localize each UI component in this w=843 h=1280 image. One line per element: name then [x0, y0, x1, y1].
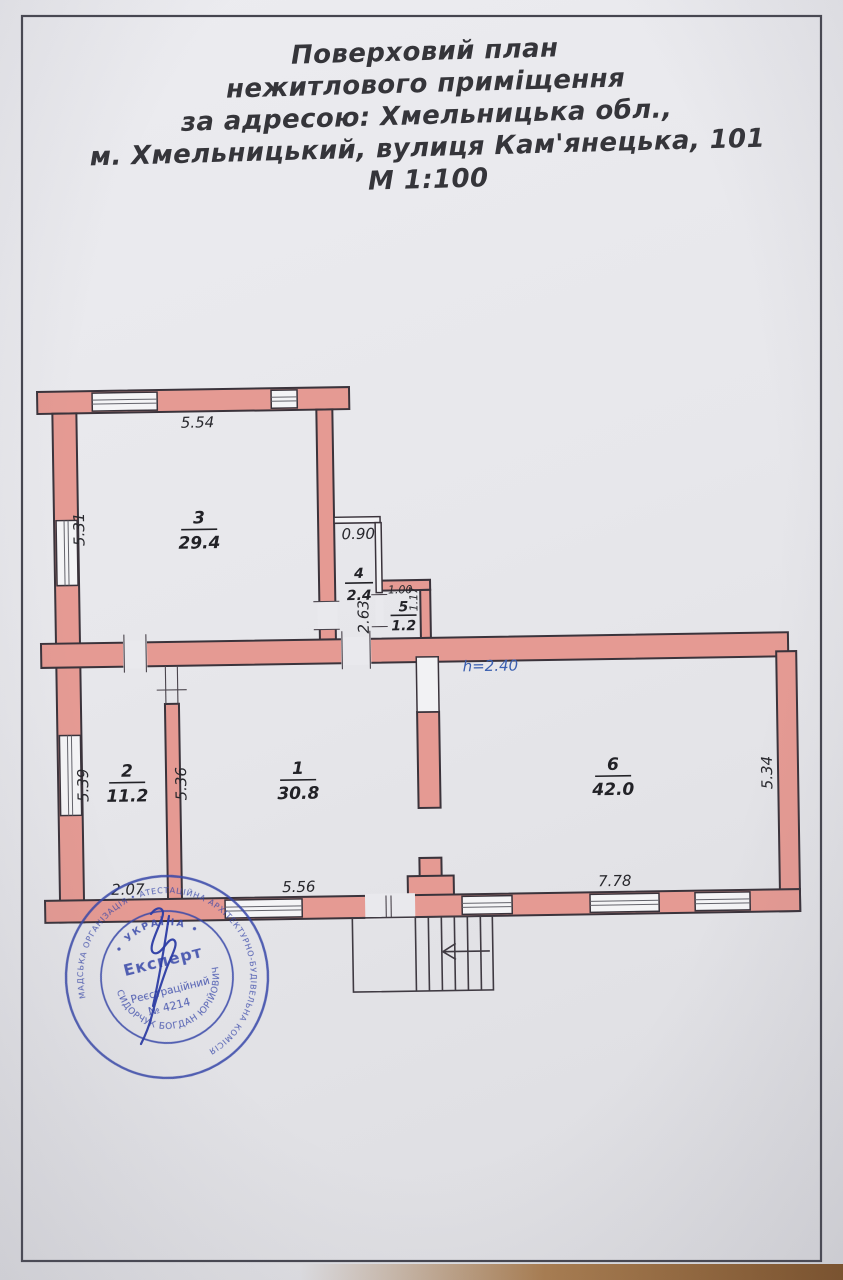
door-opening-room2-room1 [156, 666, 187, 704]
ceiling-height-note: h=2.40 [462, 656, 518, 675]
plan-body: 3 29.4 4 2.4 5 1.2 2 11.2 [37, 380, 801, 997]
top-exterior-wall [37, 387, 349, 414]
dimension-room6-width: 7.78 [598, 872, 632, 891]
dimension-room4-height: 2.63 [354, 600, 373, 634]
room-2-area: 11.2 [106, 786, 148, 807]
room-1-area: 30.8 [277, 784, 319, 805]
room-4-label: 4 2.4 [345, 566, 374, 604]
bottom-wall-window-2 [462, 896, 512, 915]
door-opening-room4-room5 [371, 594, 388, 626]
room-6-label: 6 42.0 [591, 755, 635, 801]
stairs-outline [352, 916, 493, 992]
dimension-room3-width: 5.54 [181, 413, 215, 432]
room-2-label: 2 11.2 [106, 761, 149, 807]
room-6-area: 42.0 [591, 780, 634, 801]
room4-top-wall [334, 517, 380, 524]
stairs-step-line [415, 917, 416, 991]
stairs [352, 916, 493, 992]
dimension-room3-height: 5.31 [70, 512, 89, 546]
svg-text:• ВСЕУКРАЇНСЬКА ГРОМАДСЬКА ОРГ: • ВСЕУКРАЇНСЬКА ГРОМАДСЬКА ОРГАНІЗАЦІЯ •… [0, 0, 277, 1103]
bottom-wall-window-3 [590, 893, 659, 912]
room1-room6-wall-foot [408, 875, 454, 896]
expert-stamp: • ВСЕУКРАЇНСЬКА ГРОМАДСЬКА ОРГАНІЗАЦІЯ •… [0, 0, 289, 1116]
entrance-door-opening [365, 893, 415, 920]
room4-right-wall [375, 523, 382, 593]
room5-right-wall [420, 590, 431, 638]
room-1-label: 1 30.8 [277, 759, 320, 805]
stairs-step-line [441, 917, 442, 991]
bottom-wall-window-4 [695, 892, 750, 911]
dimension-room4-width: 0.90 [341, 525, 375, 544]
room1-room6-doorway-wall [416, 657, 439, 712]
stairs-direction-arrow [443, 943, 490, 960]
stairs-step-line [480, 916, 481, 990]
room1-room6-wall [417, 712, 441, 808]
door-opening-room4-room1 [341, 631, 372, 669]
stamp-outer-ring-text: • ВСЕУКРАЇНСЬКА ГРОМАДСЬКА ОРГАНІЗАЦІЯ •… [0, 0, 277, 1103]
room-3-number: 3 [193, 508, 205, 528]
door-opening-room3-room2 [123, 634, 148, 672]
floor-plan-drawing: 3 29.4 4 2.4 5 1.2 2 11.2 [0, 0, 843, 1280]
door-opening-room3-room4 [313, 601, 339, 629]
room-5-area: 1.2 [391, 618, 416, 634]
room-4-number: 4 [353, 566, 364, 582]
top-wall-window-2 [271, 390, 297, 408]
room-6-number: 6 [607, 755, 619, 775]
top-wall-window-1 [92, 392, 157, 411]
room-3-area: 29.4 [178, 533, 220, 554]
dimension-room1-width: 5.56 [282, 878, 316, 897]
right-exterior-wall [776, 651, 800, 911]
dimension-room5-height: 1.17 [407, 587, 420, 612]
stairs-step-line [454, 916, 455, 990]
bottom-wall-window-1 [225, 899, 302, 918]
dimension-room6-height: 5.34 [758, 756, 777, 790]
stairs-step-line [428, 917, 429, 991]
dimension-room2-height: 5.39 [74, 768, 93, 802]
dimension-room1-height: 5.36 [172, 767, 191, 801]
photographed-document-page: Поверховий план нежитлового приміщення з… [0, 0, 843, 1280]
stairs-step-line [467, 916, 468, 990]
room-1-number: 1 [292, 759, 304, 779]
room-3-label: 3 29.4 [178, 508, 221, 554]
room-2-number: 2 [121, 762, 133, 782]
table-edge [300, 1264, 843, 1280]
corridor-wall [41, 632, 788, 668]
walls-group [37, 380, 800, 923]
